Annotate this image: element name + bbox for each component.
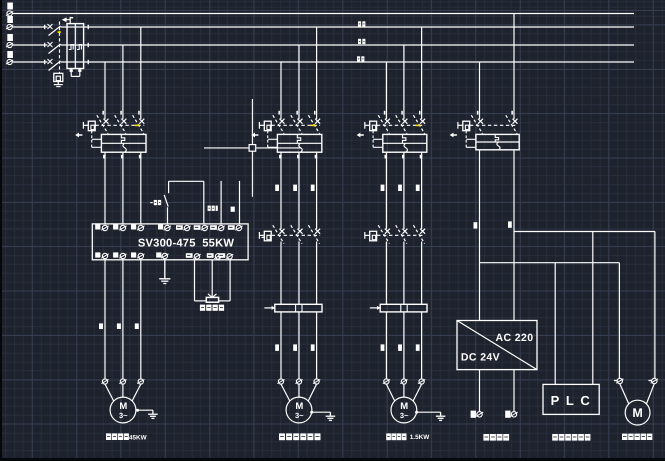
svg-text:DC 24V: DC 24V	[461, 352, 500, 364]
svg-text:1.5KW: 1.5KW	[410, 434, 430, 441]
svg-text:M: M	[632, 406, 642, 420]
svg-text:3~: 3~	[400, 411, 409, 420]
svg-text:SV300-475 55KW: SV300-475 55KW	[138, 237, 235, 249]
svg-text:3~: 3~	[295, 411, 304, 420]
svg-text:3~: 3~	[119, 411, 128, 420]
svg-text:45KW: 45KW	[129, 434, 147, 441]
svg-text:P L C: P L C	[551, 393, 592, 408]
svg-text:AC 220: AC 220	[495, 332, 533, 344]
